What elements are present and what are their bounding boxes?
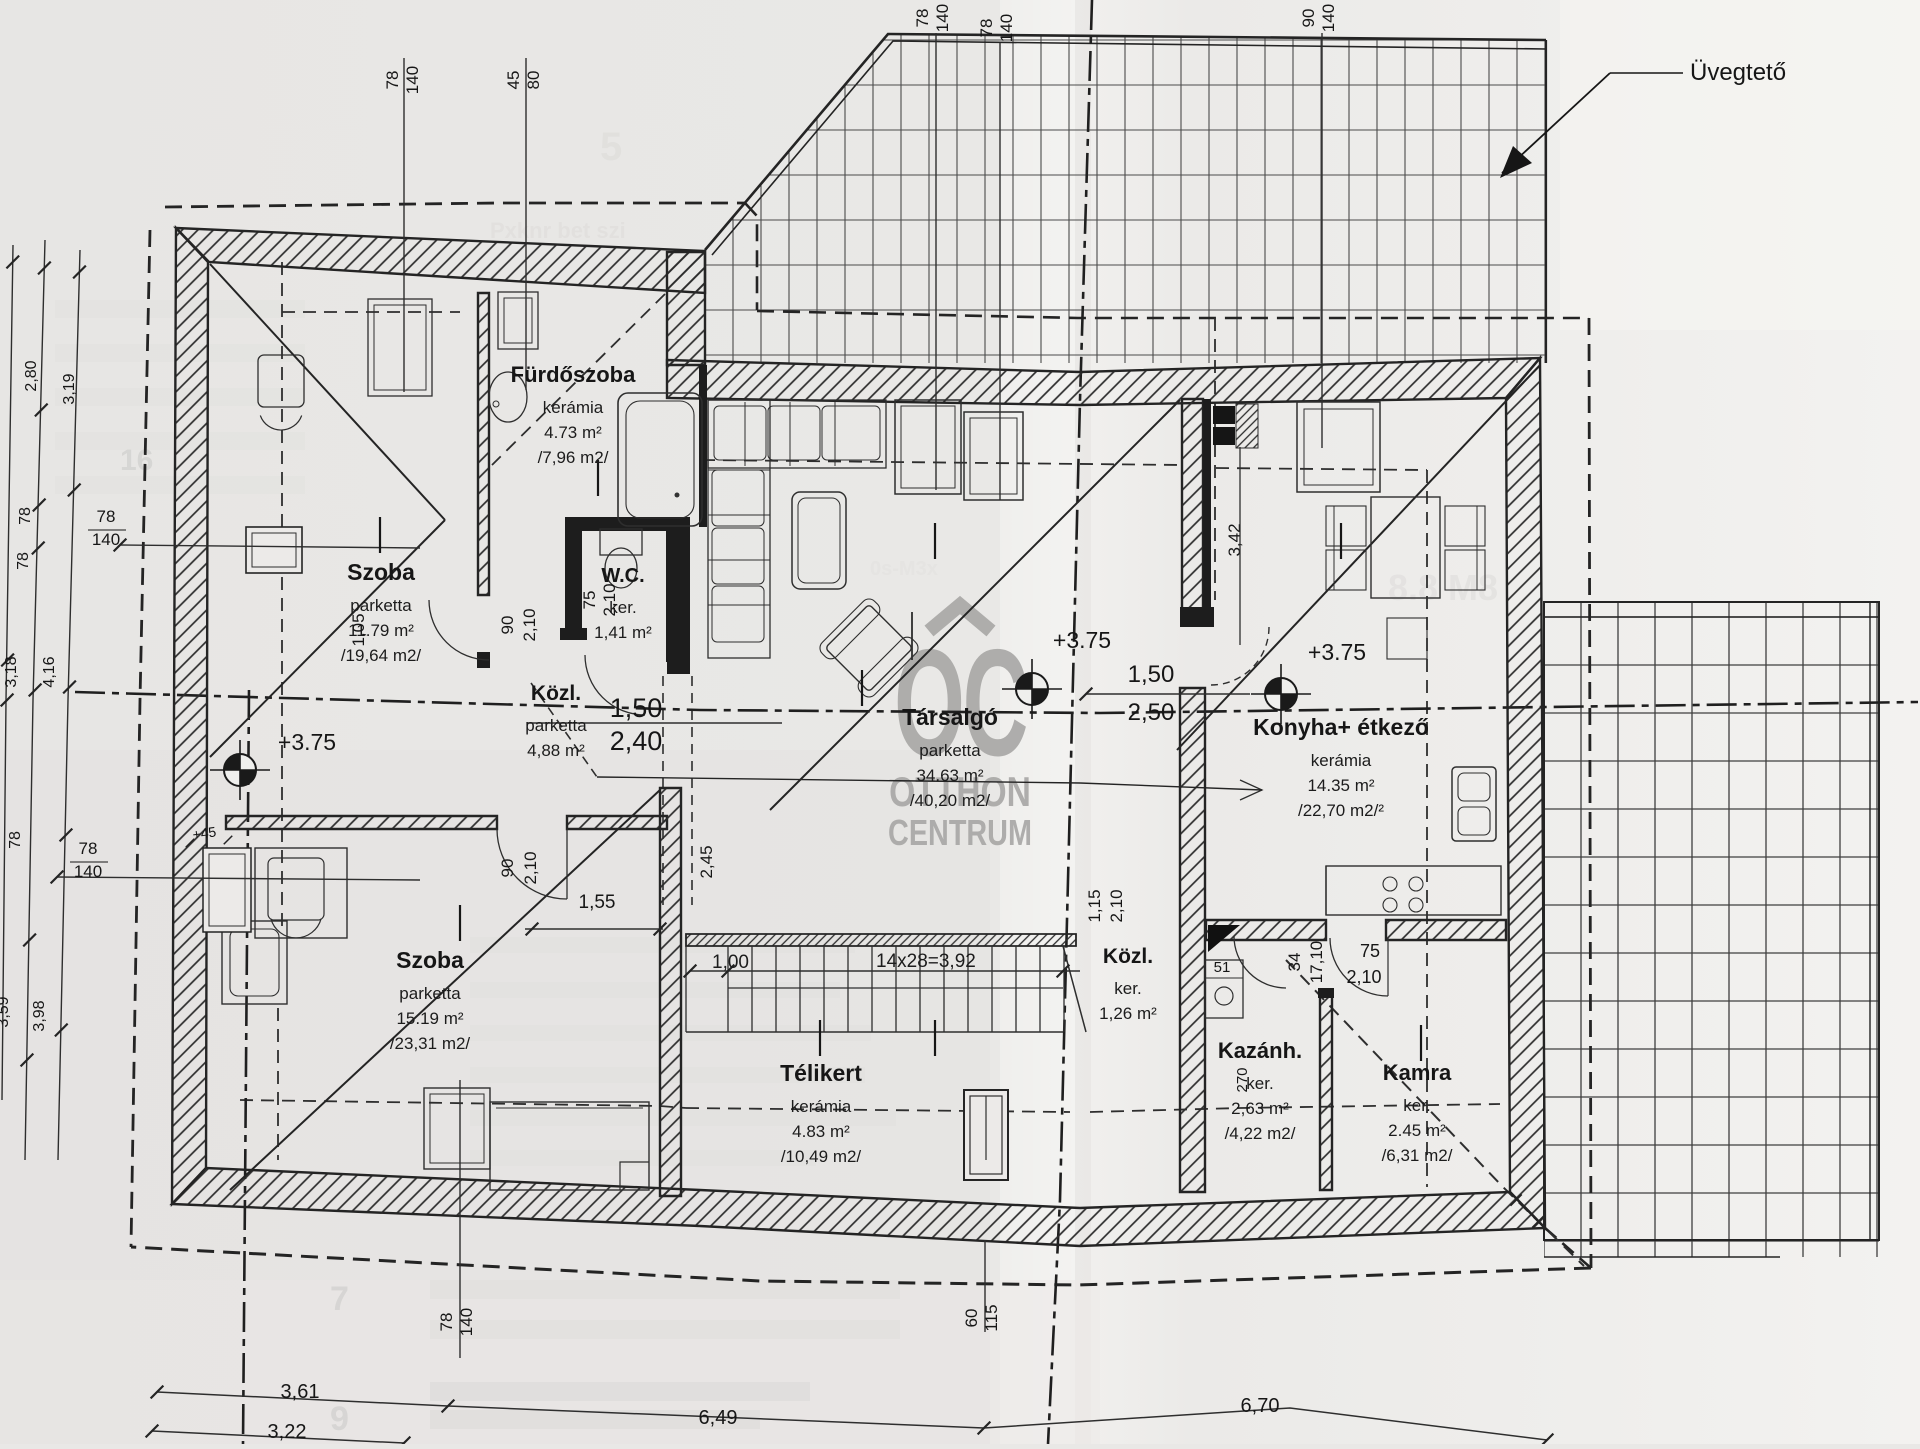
svg-text:6,70: 6,70 bbox=[1241, 1395, 1280, 1417]
svg-text:+3.75: +3.75 bbox=[1308, 639, 1366, 665]
svg-text:3,19: 3,19 bbox=[61, 373, 78, 404]
svg-text:78: 78 bbox=[7, 831, 24, 849]
svg-text:78: 78 bbox=[437, 1313, 456, 1332]
svg-text:14x28=3,92: 14x28=3,92 bbox=[876, 951, 976, 972]
svg-text:1,15: 1,15 bbox=[1085, 889, 1104, 922]
svg-text:2,50: 2,50 bbox=[1128, 699, 1175, 726]
svg-text:4,16: 4,16 bbox=[41, 656, 58, 687]
svg-text:kerámia: kerámia bbox=[543, 398, 604, 417]
svg-text:/10,49 m2/: /10,49 m2/ bbox=[781, 1147, 862, 1166]
svg-text:CENTRUM: CENTRUM bbox=[888, 812, 1032, 853]
svg-text:+45: +45 bbox=[191, 823, 217, 842]
svg-text:/19,64 m2/: /19,64 m2/ bbox=[341, 646, 422, 665]
svg-text:78: 78 bbox=[79, 839, 98, 858]
svg-text:140: 140 bbox=[933, 4, 952, 32]
svg-text:2,10: 2,10 bbox=[521, 851, 540, 884]
svg-text:78: 78 bbox=[913, 9, 932, 28]
svg-text:ker.: ker. bbox=[1403, 1096, 1430, 1115]
svg-text:51: 51 bbox=[1214, 959, 1231, 976]
svg-text:2,45: 2,45 bbox=[697, 845, 716, 878]
svg-text:/4,22 m2/: /4,22 m2/ bbox=[1225, 1124, 1296, 1143]
svg-text:45: 45 bbox=[504, 71, 523, 90]
svg-text:2,10: 2,10 bbox=[1346, 967, 1381, 987]
svg-text:2,10: 2,10 bbox=[600, 583, 619, 616]
svg-text:6,49: 6,49 bbox=[699, 1407, 738, 1429]
svg-text:1,55: 1,55 bbox=[579, 892, 616, 913]
svg-text:parketta: parketta bbox=[399, 984, 461, 1003]
svg-text:Szoba: Szoba bbox=[396, 947, 464, 973]
svg-text:140: 140 bbox=[92, 530, 120, 549]
svg-text:Társalgó: Társalgó bbox=[902, 704, 998, 730]
svg-text:2.45 m²: 2.45 m² bbox=[1388, 1121, 1446, 1140]
svg-text:3,18: 3,18 bbox=[3, 656, 20, 687]
svg-text:1,00: 1,00 bbox=[712, 952, 749, 973]
svg-text:kerámia: kerámia bbox=[1311, 751, 1372, 770]
svg-text:2,10: 2,10 bbox=[1107, 889, 1126, 922]
svg-text:60: 60 bbox=[962, 1309, 981, 1328]
svg-text:0s-M3x: 0s-M3x bbox=[870, 558, 938, 580]
svg-text:Fürdőszoba: Fürdőszoba bbox=[511, 362, 636, 387]
svg-text:17,10: 17,10 bbox=[1307, 941, 1326, 984]
svg-text:90: 90 bbox=[1299, 9, 1318, 28]
svg-text:/7,96 m2/: /7,96 m2/ bbox=[538, 448, 609, 467]
svg-text:Kamra: Kamra bbox=[1383, 1060, 1452, 1085]
svg-text:3,42: 3,42 bbox=[1225, 523, 1244, 556]
svg-text:140: 140 bbox=[457, 1308, 476, 1336]
svg-text:2,80: 2,80 bbox=[23, 360, 40, 391]
svg-text:kerámia: kerámia bbox=[791, 1097, 852, 1116]
svg-text:OC: OC bbox=[894, 618, 1027, 788]
svg-text:2,40: 2,40 bbox=[610, 726, 663, 756]
svg-text:+3.75: +3.75 bbox=[1053, 627, 1111, 653]
svg-text:78: 78 bbox=[97, 507, 116, 526]
svg-text:/22,70 m2/²: /22,70 m2/² bbox=[1298, 801, 1384, 820]
svg-text:90: 90 bbox=[498, 859, 517, 878]
svg-text:3,59: 3,59 bbox=[0, 996, 12, 1027]
svg-text:Közl.: Közl. bbox=[531, 682, 581, 705]
svg-text:parketta: parketta bbox=[919, 741, 981, 760]
svg-text:80: 80 bbox=[524, 71, 543, 90]
svg-text:78: 78 bbox=[977, 19, 996, 38]
svg-text:78: 78 bbox=[15, 552, 32, 570]
svg-text:+3.75: +3.75 bbox=[278, 729, 336, 755]
svg-text:Üvegtető: Üvegtető bbox=[1690, 59, 1786, 86]
svg-text:Közl.: Közl. bbox=[1103, 945, 1153, 968]
svg-text:90: 90 bbox=[498, 616, 517, 635]
svg-text:Pxknr bet szi: Pxknr bet szi bbox=[490, 218, 626, 243]
svg-text:9: 9 bbox=[330, 1400, 349, 1438]
svg-text:/23,31 m2/: /23,31 m2/ bbox=[390, 1034, 471, 1053]
svg-text:78: 78 bbox=[383, 71, 402, 90]
svg-text:140: 140 bbox=[403, 66, 422, 94]
svg-text:140: 140 bbox=[74, 862, 102, 881]
svg-text:2,63 m²: 2,63 m² bbox=[1231, 1099, 1289, 1118]
svg-text:1,50: 1,50 bbox=[1128, 661, 1175, 688]
svg-text:270: 270 bbox=[1234, 1067, 1251, 1092]
svg-text:Télikert: Télikert bbox=[780, 1060, 862, 1086]
svg-text:7: 7 bbox=[330, 1280, 349, 1318]
svg-text:ker.: ker. bbox=[1114, 979, 1141, 998]
svg-text:78: 78 bbox=[17, 507, 34, 525]
svg-text:1,50: 1,50 bbox=[610, 693, 663, 723]
svg-text:Konyha+ étkező: Konyha+ étkező bbox=[1253, 714, 1429, 740]
svg-text:115: 115 bbox=[982, 1304, 1001, 1331]
svg-text:/6,31 m2/: /6,31 m2/ bbox=[1382, 1146, 1453, 1165]
svg-text:3,98: 3,98 bbox=[31, 1000, 48, 1031]
svg-text:Kazánh.: Kazánh. bbox=[1218, 1038, 1302, 1063]
svg-text:34: 34 bbox=[1285, 953, 1304, 972]
svg-text:/40,20 m2/: /40,20 m2/ bbox=[910, 791, 991, 810]
svg-text:5: 5 bbox=[600, 125, 622, 169]
svg-text:8.8 M8: 8.8 M8 bbox=[1388, 567, 1498, 608]
svg-text:14.35 m²: 14.35 m² bbox=[1307, 776, 1374, 795]
svg-text:3,61: 3,61 bbox=[281, 1381, 320, 1403]
svg-text:1,41 m²: 1,41 m² bbox=[594, 623, 652, 642]
svg-text:1,26 m²: 1,26 m² bbox=[1099, 1004, 1157, 1023]
svg-text:4.73 m²: 4.73 m² bbox=[544, 423, 602, 442]
svg-text:3,22: 3,22 bbox=[268, 1421, 307, 1443]
svg-text:4,88 m²: 4,88 m² bbox=[527, 741, 585, 760]
svg-text:75: 75 bbox=[580, 591, 599, 610]
svg-text:140: 140 bbox=[1319, 4, 1338, 32]
svg-text:4.83 m²: 4.83 m² bbox=[792, 1122, 850, 1141]
svg-text:2,10: 2,10 bbox=[520, 608, 539, 641]
svg-text:Szoba: Szoba bbox=[347, 559, 415, 585]
svg-text:75: 75 bbox=[1360, 941, 1380, 961]
svg-text:34.63 m²: 34.63 m² bbox=[916, 766, 983, 785]
svg-text:16: 16 bbox=[120, 444, 153, 477]
svg-text:15.19 m²: 15.19 m² bbox=[396, 1009, 463, 1028]
svg-text:140: 140 bbox=[997, 14, 1016, 42]
svg-text:1,05: 1,05 bbox=[349, 613, 368, 646]
svg-text:parketta: parketta bbox=[525, 716, 587, 735]
svg-text:parketta: parketta bbox=[350, 596, 412, 615]
